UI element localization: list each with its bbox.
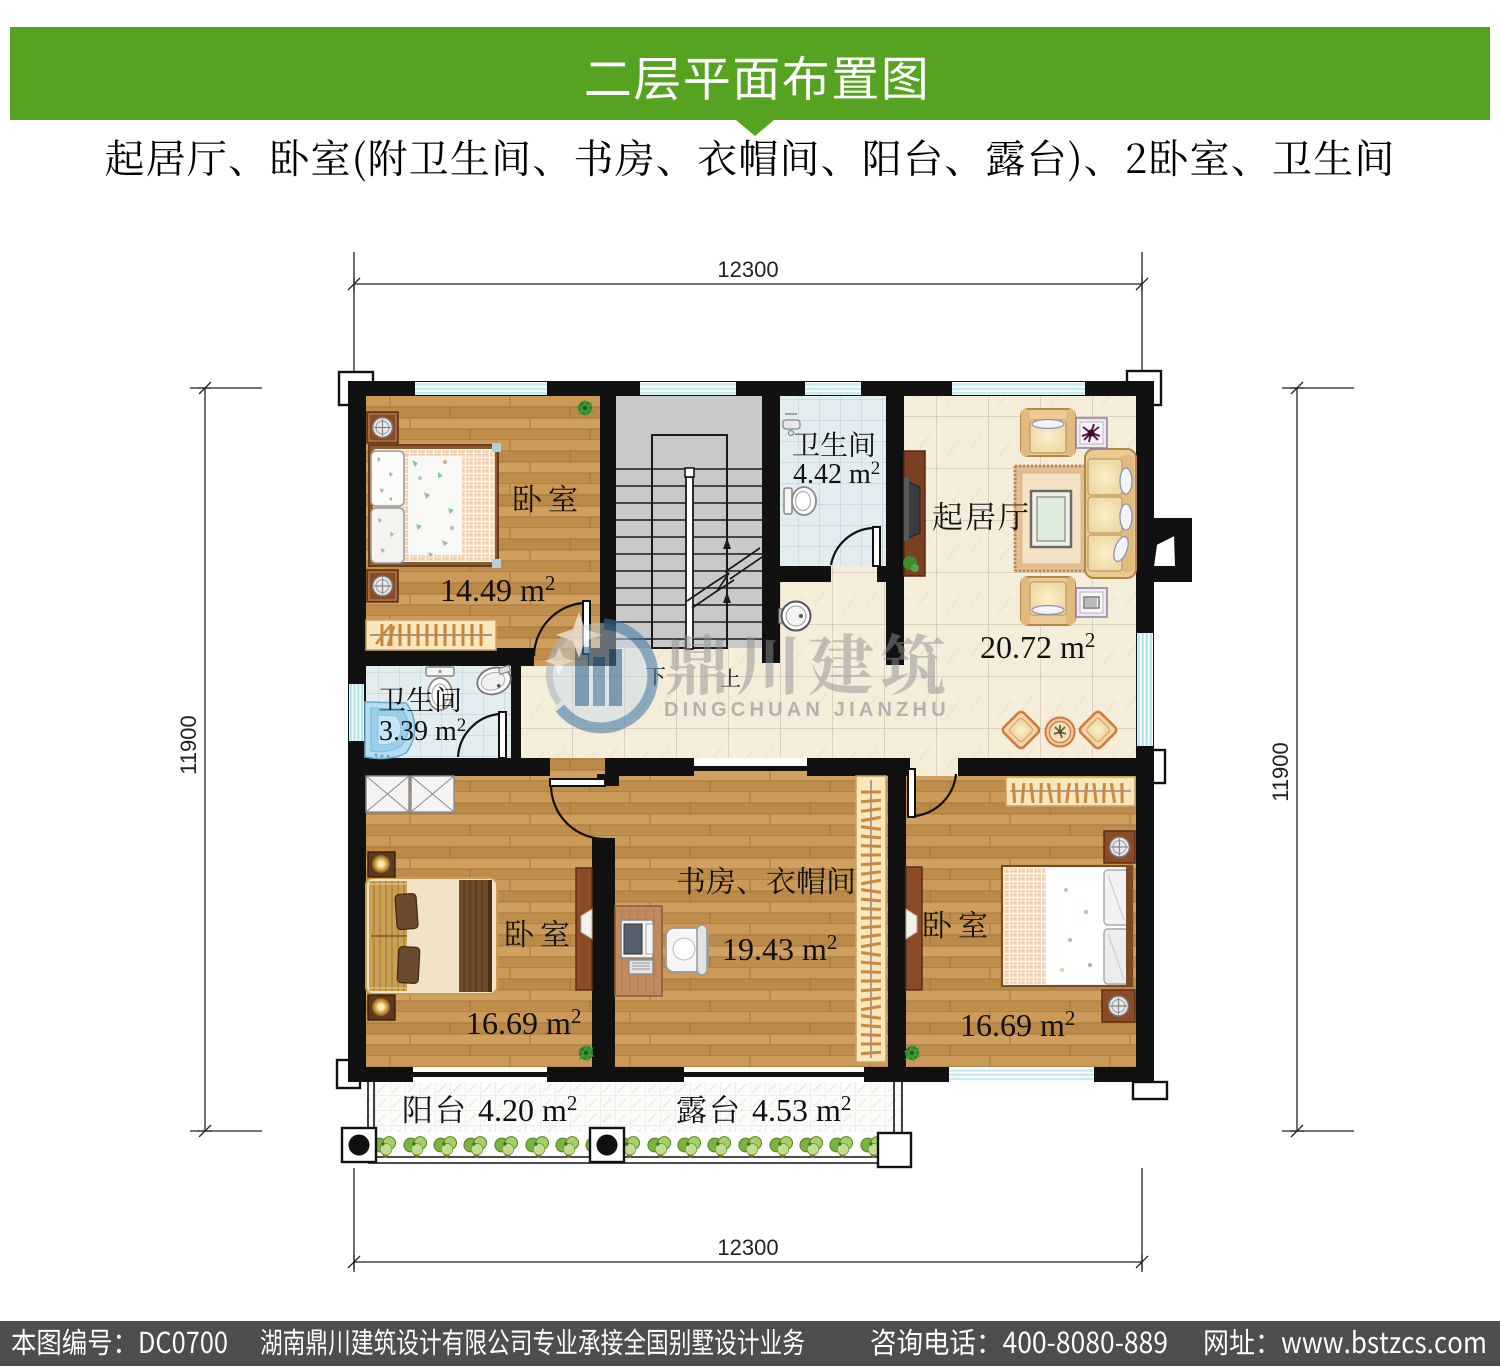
svg-text:3.39 m2: 3.39 m2 [379,715,466,747]
svg-text:4.53 m2: 4.53 m2 [752,1091,851,1128]
svg-text:4.42 m2: 4.42 m2 [793,458,880,490]
svg-text:16.69 m2: 16.69 m2 [960,1006,1075,1043]
svg-text:11900: 11900 [1268,742,1293,802]
svg-text:DINGCHUAN JIANZHU: DINGCHUAN JIANZHU [664,699,950,721]
svg-text:14.49 m2: 14.49 m2 [440,571,555,608]
svg-text:16.69 m2: 16.69 m2 [466,1004,581,1041]
svg-text:4.20 m2: 4.20 m2 [478,1091,577,1128]
svg-text:12300: 12300 [717,1235,778,1260]
svg-text:19.43 m2: 19.43 m2 [722,930,837,967]
svg-text:11900: 11900 [176,715,201,775]
svg-text:12300: 12300 [717,257,778,282]
svg-text:20.72 m2: 20.72 m2 [980,628,1095,665]
